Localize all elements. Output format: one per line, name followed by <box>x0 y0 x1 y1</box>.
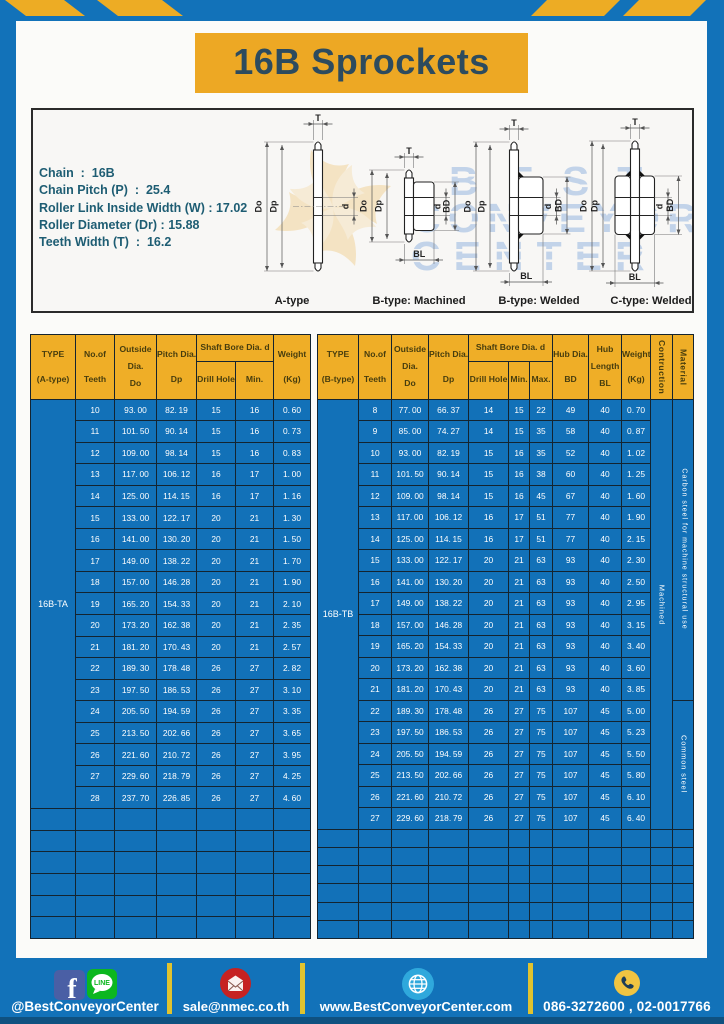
svg-text:Dp: Dp <box>590 200 600 212</box>
svg-text:LINE: LINE <box>94 980 110 987</box>
svg-text:BL: BL <box>629 272 641 282</box>
svg-text:BL: BL <box>520 271 532 281</box>
svg-text:Do: Do <box>254 200 264 212</box>
svg-text:Do: Do <box>579 200 589 212</box>
svg-text:Do: Do <box>359 200 369 212</box>
svg-text:BD: BD <box>554 199 564 212</box>
svg-text:Dp: Dp <box>269 200 279 212</box>
svg-text:d: d <box>655 204 665 210</box>
svg-text:T: T <box>315 113 321 123</box>
svg-text:T: T <box>511 118 517 128</box>
svg-text:Dp: Dp <box>477 200 487 212</box>
svg-text:BD: BD <box>665 198 675 211</box>
svg-text:Do: Do <box>463 200 473 212</box>
svg-text:T: T <box>406 146 412 156</box>
svg-text:BD: BD <box>442 199 452 212</box>
svg-text:BL: BL <box>413 249 425 259</box>
svg-text:d: d <box>543 204 553 210</box>
svg-text:d: d <box>341 204 351 210</box>
svg-text:Dp: Dp <box>374 200 384 212</box>
svg-text:T: T <box>632 117 638 127</box>
